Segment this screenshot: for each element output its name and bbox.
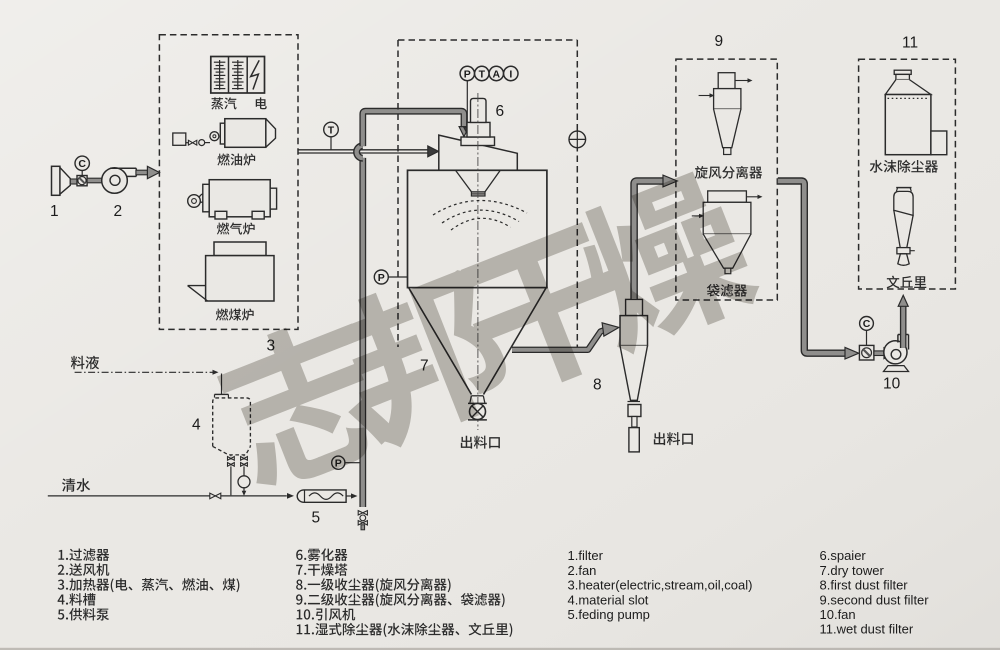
svg-text:T: T — [328, 124, 335, 136]
svg-text:9.second dust filter: 9.second dust filter — [820, 592, 930, 607]
svg-text:6: 6 — [496, 103, 505, 120]
svg-text:10.fan: 10.fan — [820, 607, 856, 622]
svg-text:1: 1 — [50, 203, 59, 220]
svg-text:T: T — [479, 68, 486, 80]
svg-text:9: 9 — [715, 33, 724, 50]
svg-text:I: I — [509, 68, 512, 80]
svg-text:A: A — [493, 68, 501, 80]
svg-text:2: 2 — [114, 203, 123, 220]
svg-text:5: 5 — [312, 510, 321, 527]
svg-text:C: C — [863, 318, 871, 330]
svg-text:1.filter: 1.filter — [568, 548, 604, 563]
svg-text:6.spaier: 6.spaier — [820, 548, 867, 563]
svg-text:P: P — [464, 68, 471, 80]
svg-text:4.material slot: 4.material slot — [568, 592, 649, 607]
svg-text:11: 11 — [902, 35, 918, 52]
svg-text:5.feding pump: 5.feding pump — [568, 607, 650, 622]
svg-text:8.first dust filter: 8.first dust filter — [820, 578, 909, 593]
svg-text:4: 4 — [192, 417, 201, 434]
svg-text:C: C — [78, 158, 86, 170]
svg-text:3.heater(electric,stream,oil,c: 3.heater(electric,stream,oil,coal) — [568, 578, 753, 593]
svg-text:P: P — [378, 272, 385, 284]
svg-text:10: 10 — [883, 376, 901, 393]
svg-text:11.wet dust filter: 11.wet dust filter — [820, 622, 914, 637]
svg-text:2.fan: 2.fan — [568, 563, 597, 578]
svg-text:8: 8 — [593, 377, 602, 394]
svg-text:7.dry tower: 7.dry tower — [820, 563, 885, 578]
